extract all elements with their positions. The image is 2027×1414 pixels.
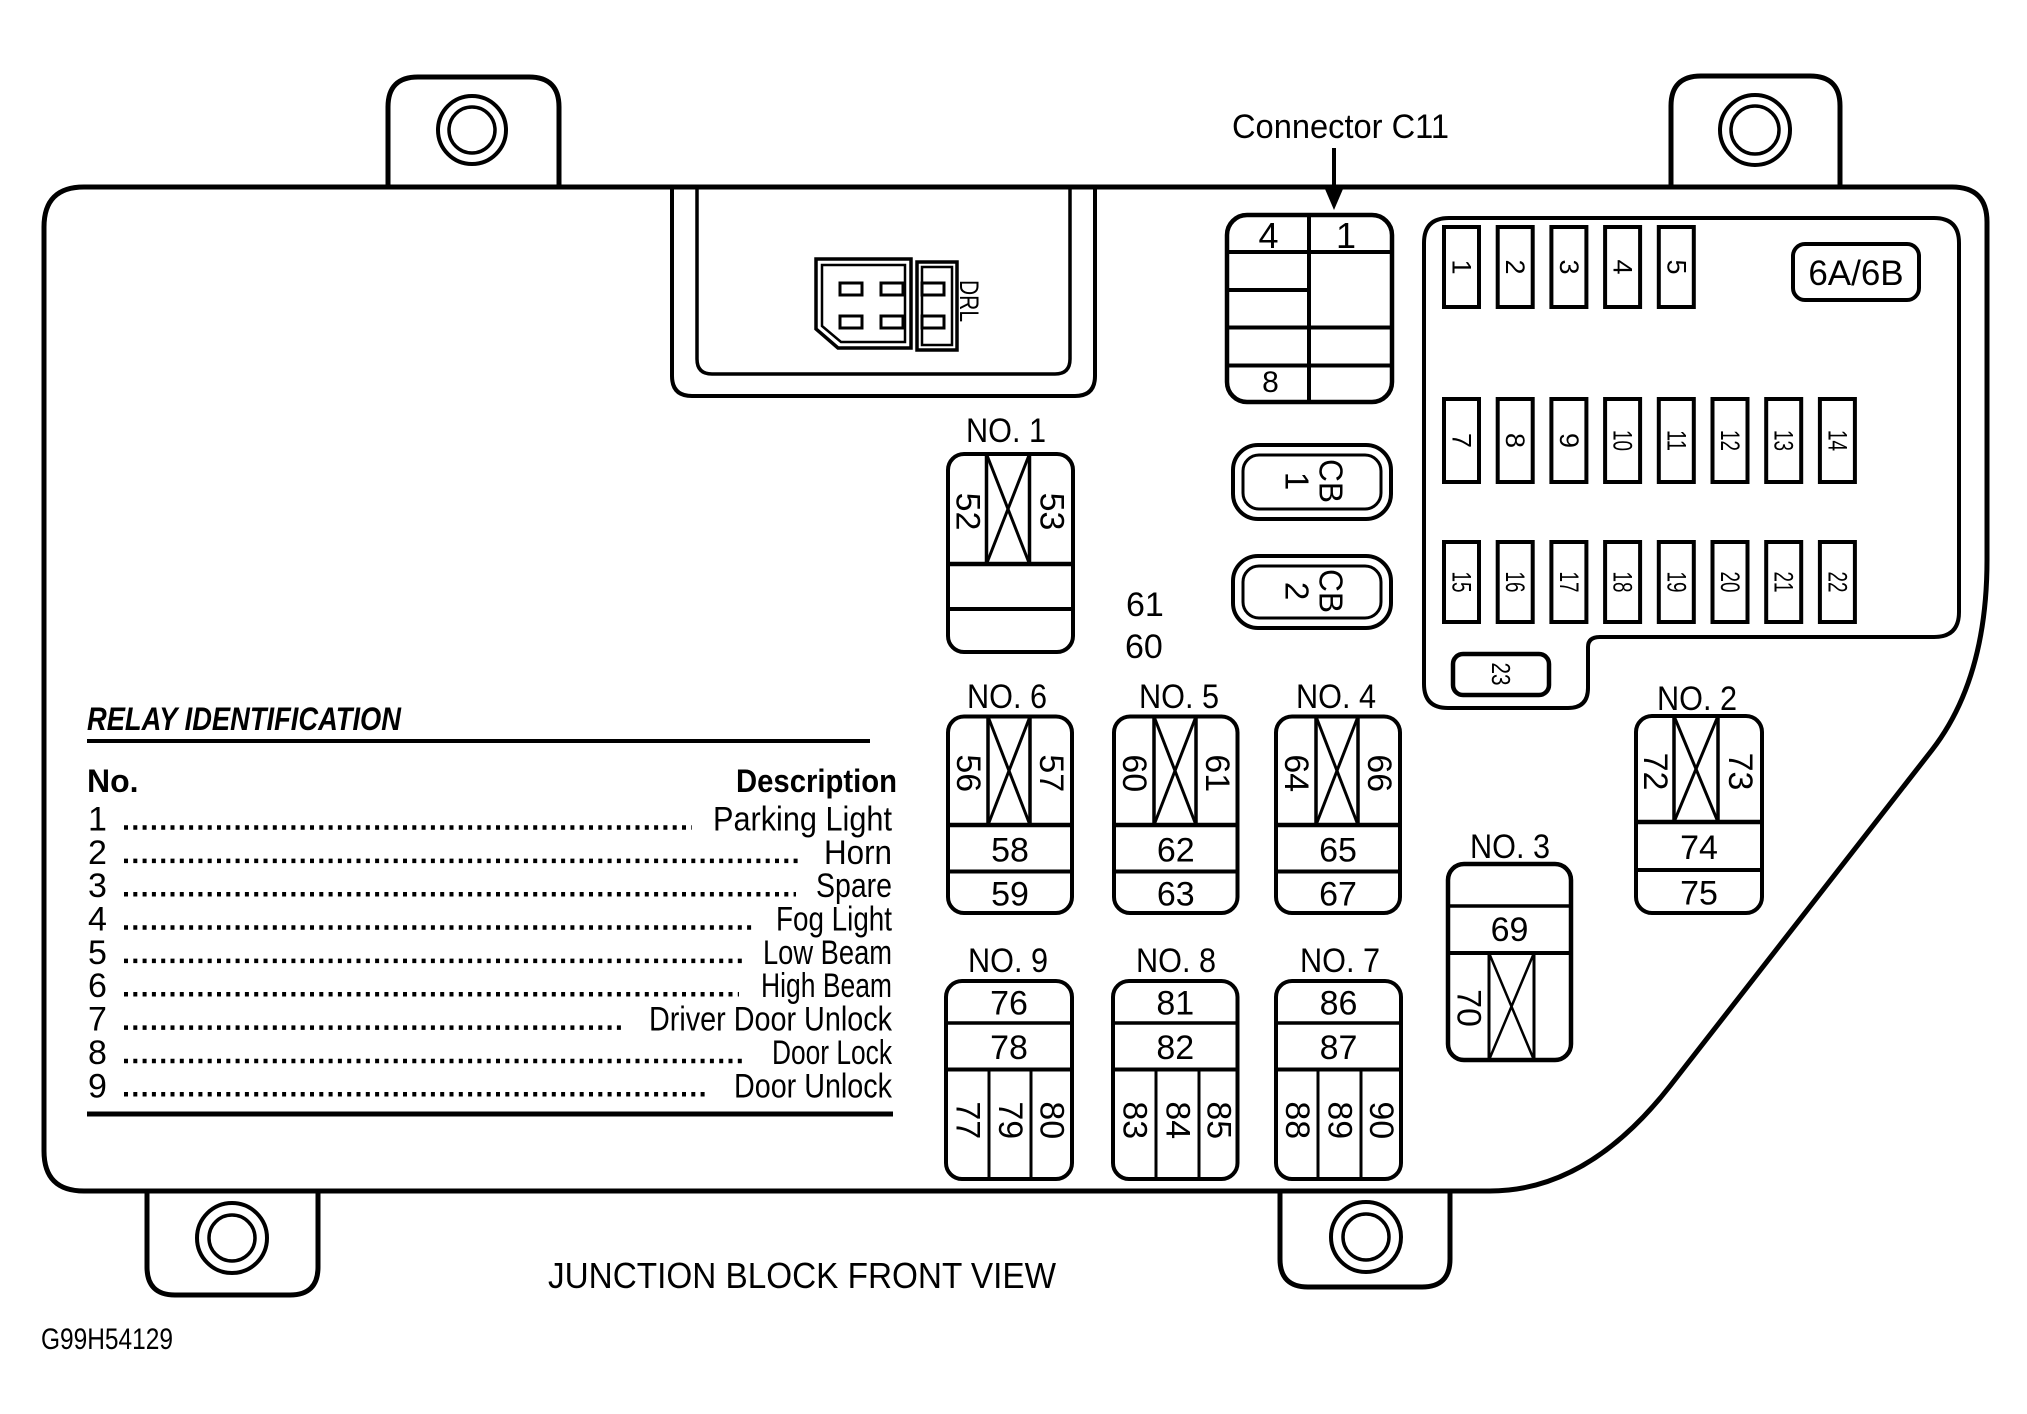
svg-text:5: 5 (1661, 259, 1691, 274)
svg-text:CB: CB (1313, 569, 1350, 613)
svg-text:DRL: DRL (954, 280, 984, 322)
svg-text:18: 18 (1608, 572, 1638, 593)
svg-text:NO. 2: NO. 2 (1657, 680, 1737, 718)
svg-text:8: 8 (1262, 366, 1279, 399)
svg-text:63: 63 (1157, 875, 1195, 913)
svg-text:8: 8 (88, 1034, 107, 1072)
svg-text:NO. 4: NO. 4 (1296, 678, 1376, 716)
svg-text:3: 3 (1554, 259, 1584, 274)
svg-text:12: 12 (1715, 430, 1745, 451)
svg-text:4: 4 (1608, 259, 1638, 274)
svg-text:86: 86 (1320, 985, 1358, 1023)
svg-text:7: 7 (88, 1001, 107, 1039)
svg-text:CB: CB (1313, 459, 1350, 503)
svg-text:64: 64 (1277, 754, 1315, 792)
svg-text:81: 81 (1156, 985, 1194, 1023)
svg-text:Connector C11: Connector C11 (1232, 108, 1449, 146)
svg-text:9: 9 (88, 1067, 107, 1105)
svg-text:83: 83 (1116, 1101, 1154, 1139)
svg-text:70: 70 (1450, 989, 1488, 1027)
svg-text:2: 2 (1500, 259, 1530, 274)
svg-text:14: 14 (1822, 430, 1852, 451)
svg-text:66: 66 (1360, 754, 1398, 792)
svg-text:7: 7 (1447, 433, 1477, 448)
svg-text:4: 4 (88, 901, 107, 939)
svg-text:87: 87 (1320, 1029, 1358, 1067)
svg-text:75: 75 (1680, 875, 1718, 913)
svg-text:JUNCTION BLOCK FRONT VIEW: JUNCTION BLOCK FRONT VIEW (548, 1255, 1056, 1296)
svg-text:57: 57 (1032, 754, 1070, 792)
svg-text:61: 61 (1198, 754, 1236, 792)
svg-text:85: 85 (1199, 1101, 1237, 1139)
svg-text:23: 23 (1486, 663, 1516, 686)
svg-text:11: 11 (1661, 430, 1691, 451)
svg-text:9: 9 (1554, 433, 1584, 448)
svg-text:3: 3 (88, 867, 107, 905)
svg-text:21: 21 (1769, 572, 1799, 593)
svg-text:G99H54129: G99H54129 (41, 1323, 173, 1356)
svg-text:High Beam: High Beam (761, 967, 892, 1005)
svg-text:5: 5 (88, 934, 107, 972)
svg-text:Description: Description (736, 763, 897, 799)
svg-text:62: 62 (1157, 831, 1195, 869)
svg-text:NO. 7: NO. 7 (1300, 942, 1380, 980)
svg-text:67: 67 (1319, 875, 1357, 913)
svg-text:79: 79 (991, 1101, 1029, 1139)
svg-text:NO. 5: NO. 5 (1139, 678, 1219, 716)
svg-text:22: 22 (1822, 572, 1852, 593)
svg-text:77: 77 (949, 1101, 987, 1139)
svg-text:89: 89 (1321, 1101, 1359, 1139)
svg-text:16: 16 (1500, 572, 1530, 593)
svg-text:56: 56 (949, 754, 987, 792)
svg-text:20: 20 (1715, 572, 1745, 593)
svg-text:Driver Door Unlock: Driver Door Unlock (649, 1001, 893, 1039)
svg-text:78: 78 (990, 1029, 1028, 1067)
svg-text:4: 4 (1258, 215, 1278, 256)
svg-text:Horn: Horn (824, 834, 892, 872)
svg-text:15: 15 (1447, 572, 1477, 593)
svg-text:1: 1 (1279, 472, 1316, 490)
svg-text:58: 58 (991, 831, 1029, 869)
svg-text:No.: No. (87, 763, 139, 799)
svg-text:Door Unlock: Door Unlock (734, 1067, 893, 1105)
svg-text:10: 10 (1608, 430, 1638, 451)
svg-text:59: 59 (991, 875, 1029, 913)
svg-text:2: 2 (88, 834, 107, 872)
svg-text:74: 74 (1680, 829, 1718, 867)
svg-text:53: 53 (1032, 493, 1070, 531)
svg-text:6A/6B: 6A/6B (1808, 254, 1903, 293)
svg-text:82: 82 (1156, 1029, 1194, 1067)
svg-text:NO. 6: NO. 6 (967, 678, 1047, 716)
svg-text:8: 8 (1500, 433, 1530, 448)
svg-text:90: 90 (1362, 1101, 1400, 1139)
svg-text:6: 6 (88, 967, 107, 1005)
svg-text:1: 1 (1336, 215, 1356, 256)
svg-text:Spare: Spare (816, 867, 892, 905)
svg-text:NO. 8: NO. 8 (1136, 942, 1216, 980)
svg-text:72: 72 (1636, 753, 1674, 791)
svg-text:17: 17 (1554, 572, 1584, 593)
svg-text:76: 76 (990, 985, 1028, 1023)
svg-text:2: 2 (1279, 582, 1316, 600)
svg-text:Door Lock: Door Lock (772, 1034, 893, 1072)
svg-text:61: 61 (1126, 586, 1164, 624)
svg-text:RELAY IDENTIFICATION: RELAY IDENTIFICATION (87, 701, 402, 737)
svg-text:1: 1 (88, 801, 107, 839)
svg-text:60: 60 (1125, 628, 1163, 666)
svg-text:NO. 1: NO. 1 (966, 412, 1046, 450)
svg-text:Fog Light: Fog Light (776, 901, 892, 939)
svg-text:88: 88 (1278, 1101, 1316, 1139)
svg-text:NO. 9: NO. 9 (968, 942, 1048, 980)
svg-text:Parking Light: Parking Light (713, 801, 892, 839)
svg-text:80: 80 (1033, 1101, 1071, 1139)
svg-text:52: 52 (948, 493, 986, 531)
svg-text:13: 13 (1769, 430, 1799, 451)
svg-text:1: 1 (1447, 259, 1477, 274)
svg-text:84: 84 (1159, 1101, 1197, 1139)
svg-text:NO. 3: NO. 3 (1470, 828, 1550, 866)
svg-text:69: 69 (1491, 911, 1529, 949)
svg-text:60: 60 (1115, 754, 1153, 792)
svg-text:19: 19 (1661, 572, 1691, 593)
svg-text:Low Beam: Low Beam (763, 934, 892, 972)
svg-text:73: 73 (1721, 753, 1759, 791)
svg-text:65: 65 (1319, 831, 1357, 869)
